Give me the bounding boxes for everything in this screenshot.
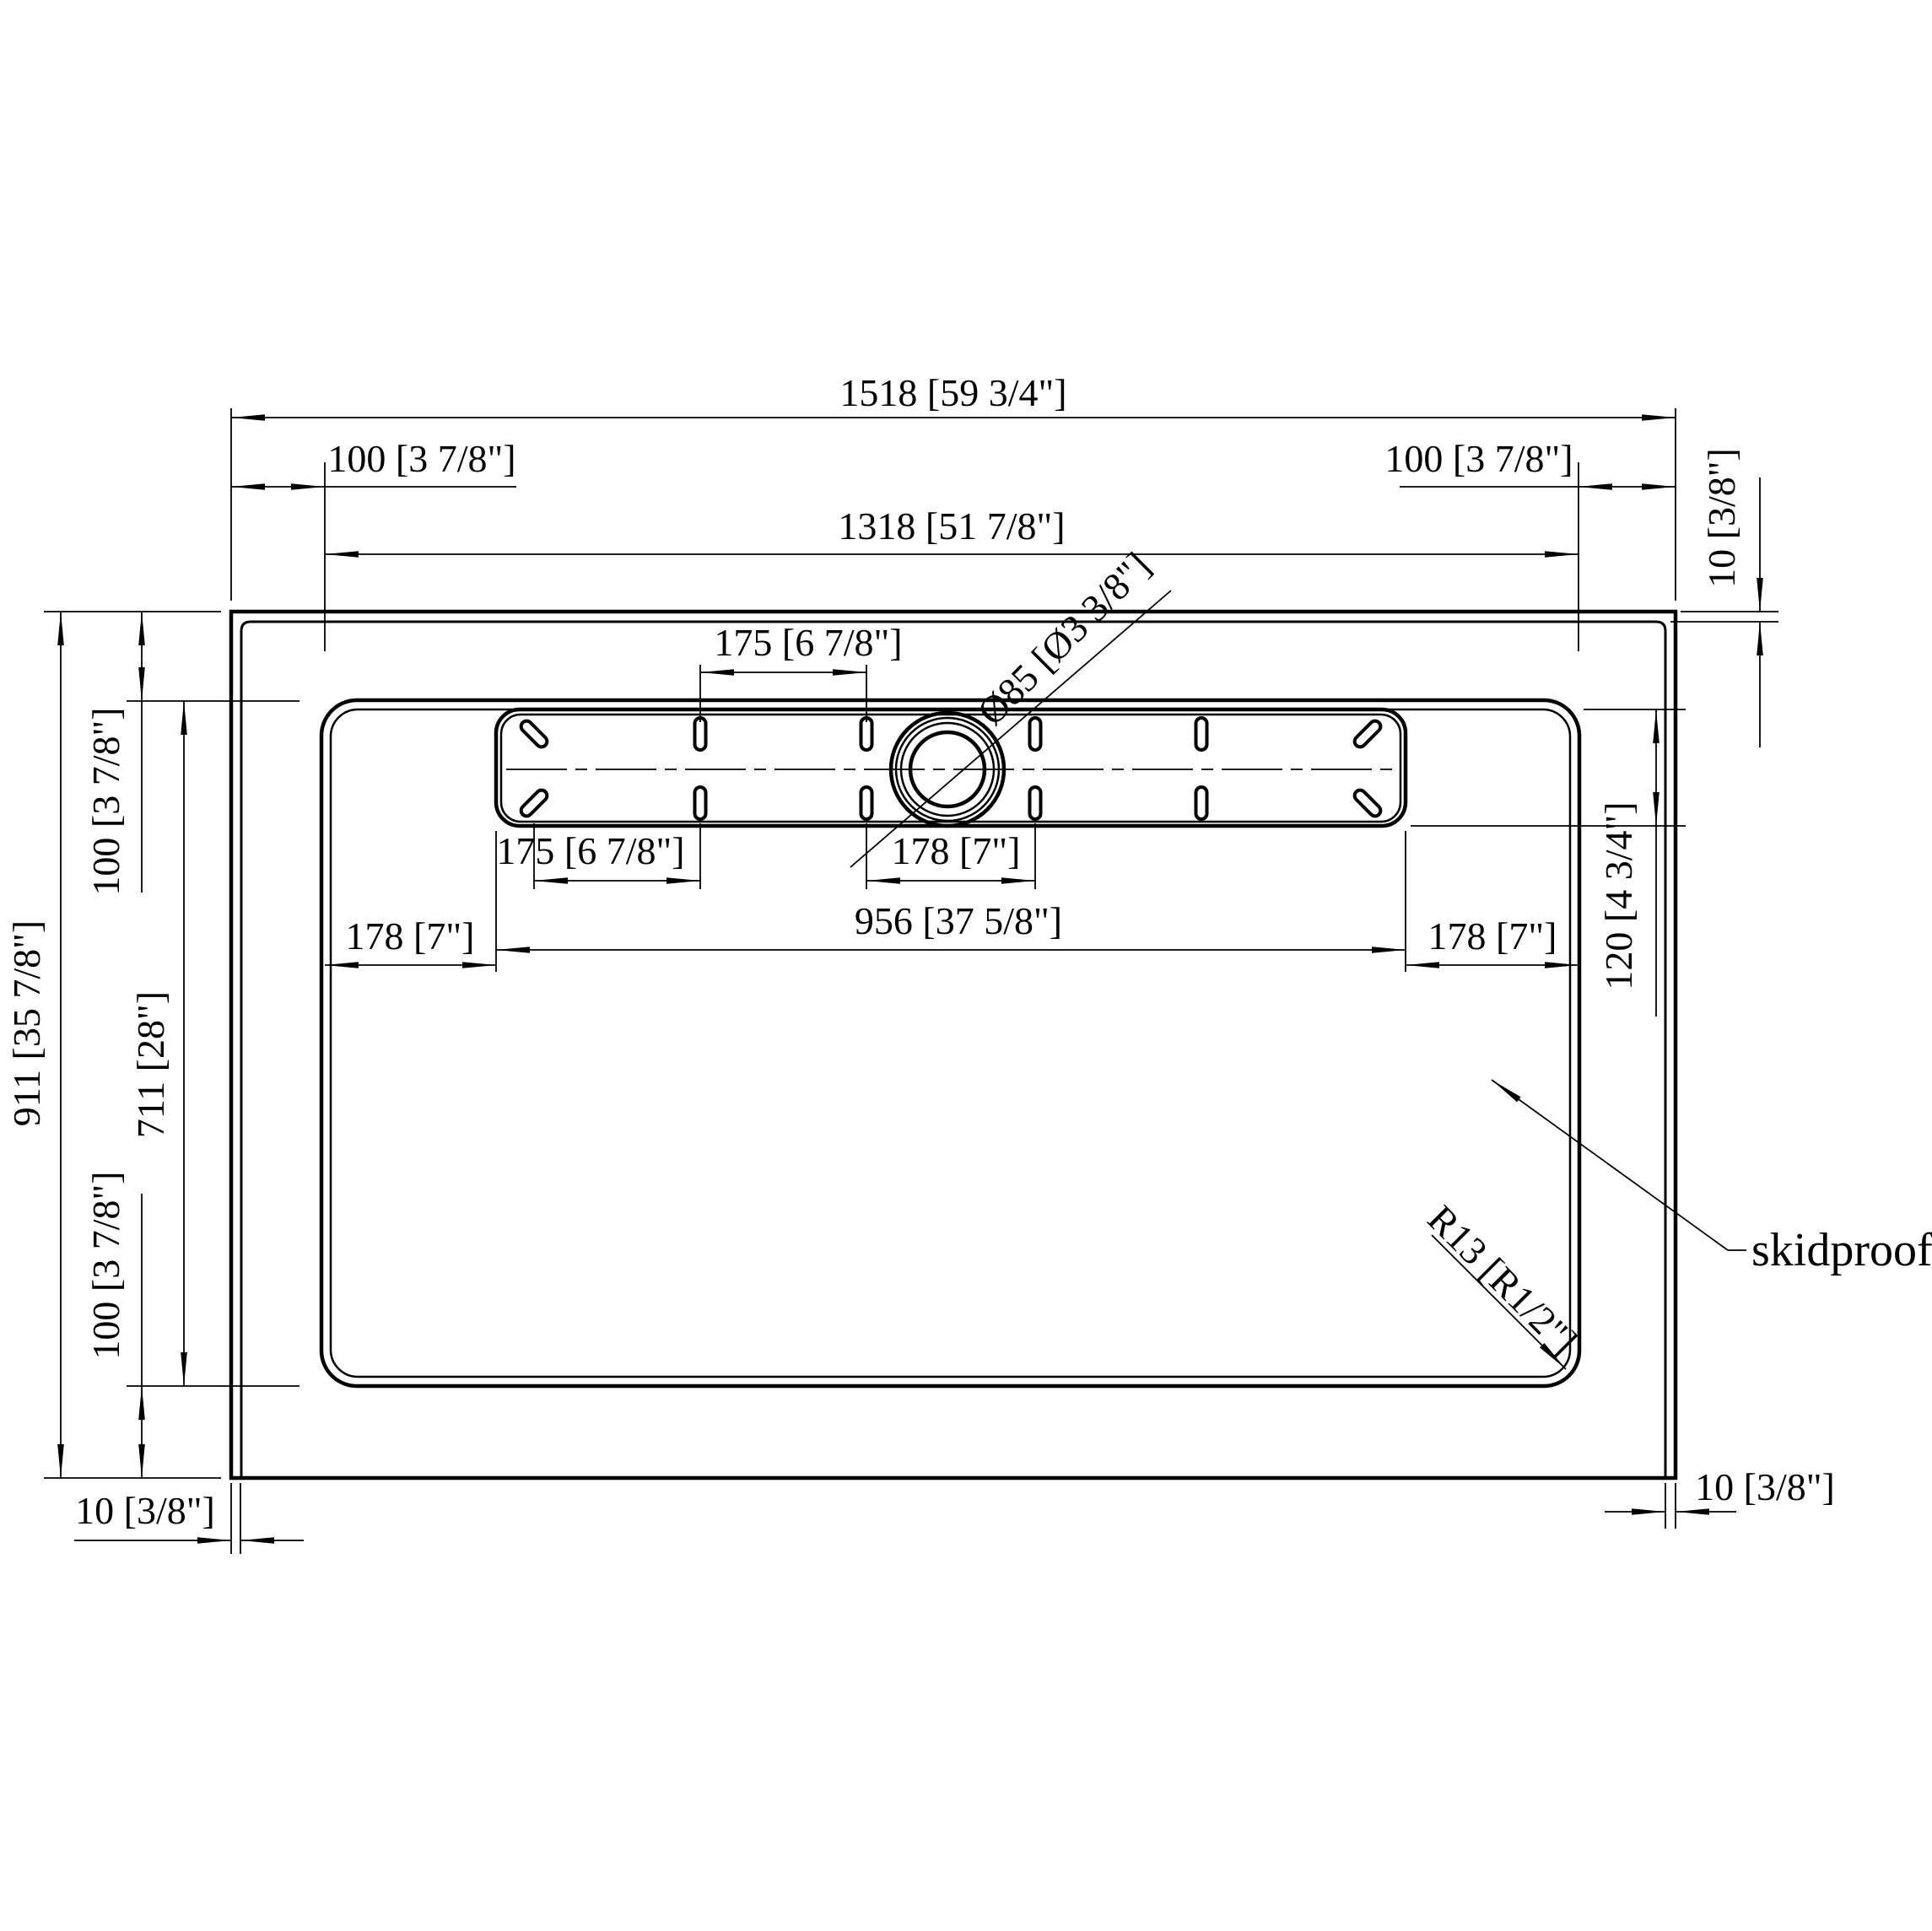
grate-slot	[1196, 718, 1207, 750]
dim-edge-step-top-right: 10 [3/8"]	[1670, 448, 1778, 747]
dim-strip-height: 120 [4 3/4"]	[1411, 709, 1686, 1017]
drain-assembly	[496, 709, 1406, 826]
dim-corner-radius: R13 [R1/2"]	[1420, 1197, 1586, 1369]
dim-text-basin-height: 711 [28"]	[129, 991, 172, 1138]
dim-text-drain-diameter: Ø85 [Ø3 3/8"]	[969, 544, 1159, 734]
dim-strip-offset-right: 178 [7"]	[1406, 914, 1579, 965]
dim-text-strip-width: 956 [37 5/8"]	[855, 899, 1062, 942]
grate-slot	[1030, 787, 1041, 819]
dim-slot-pitch-lower-center: 178 [7"]	[866, 823, 1035, 889]
dim-strip-offset-left: 178 [7"]	[325, 914, 496, 965]
dim-basin-width: 1318 [51 7/8"]	[325, 504, 1579, 554]
dim-text-slot-pitch-upper: 175 [6 7/8"]	[714, 621, 902, 664]
dim-edge-step-bottom-left: 10 [3/8"]	[74, 1483, 304, 1554]
dim-text-lip-bottom: 100 [3 7/8"]	[84, 1171, 127, 1359]
dim-text-lip-left: 100 [3 7/8"]	[327, 437, 515, 480]
dim-text-lip-right: 100 [3 7/8"]	[1384, 437, 1573, 480]
grate-slot	[695, 718, 706, 750]
grate-slot-diagonal	[1352, 719, 1383, 749]
dim-edge-step-bottom-right: 10 [3/8"]	[1605, 1465, 1835, 1529]
dim-text-edge-step-bottom-right: 10 [3/8"]	[1695, 1465, 1835, 1508]
dim-slot-pitch-lower-left: 175 [6 7/8"]	[496, 823, 700, 889]
drawing-sheet: 1518 [59 3/4"] 100 [3 7/8"] 100 [3 7/8"]…	[0, 0, 1932, 1931]
dim-lip-right: 100 [3 7/8"]	[1384, 437, 1676, 651]
dim-text-slot-pitch-lower-center: 178 [7"]	[892, 829, 1021, 872]
grate-slot-diagonal	[519, 719, 549, 749]
dim-text-corner-radius: R13 [R1/2"]	[1420, 1197, 1586, 1363]
dim-lip-bottom: 100 [3 7/8"]	[84, 1171, 300, 1478]
dim-text-strip-offset-right: 178 [7"]	[1428, 914, 1557, 957]
dim-text-basin-width: 1318 [51 7/8"]	[838, 504, 1065, 547]
tray-outer-edge	[231, 612, 1676, 1478]
basin-outer-edge	[321, 700, 1579, 1386]
dim-text-edge-step-bottom-left: 10 [3/8"]	[75, 1489, 215, 1532]
grate-slot	[695, 787, 706, 819]
grate-slot-diagonal	[1352, 788, 1383, 818]
dim-slot-pitch-upper: 175 [6 7/8"]	[700, 621, 903, 722]
dim-text-edge-step-top-right: 10 [3/8"]	[1700, 448, 1743, 588]
label-text-skidproof: skidproof	[1751, 1224, 1932, 1276]
label-skidproof: skidproof	[1492, 1080, 1932, 1276]
dim-drain-diameter: Ø85 [Ø3 3/8"]	[850, 544, 1171, 867]
dim-text-overall-height: 911 [35 7/8"]	[5, 920, 48, 1127]
dim-text-strip-height: 120 [4 3/4"]	[1597, 801, 1640, 990]
dim-text-overall-width: 1518 [59 3/4"]	[839, 371, 1066, 414]
dim-lip-top: 100 [3 7/8"]	[84, 612, 300, 896]
tray-rim-edge	[241, 622, 1665, 1478]
dim-basin-height: 711 [28"]	[129, 701, 184, 1386]
basin-inner-edge	[331, 709, 1570, 1377]
drain-strip-outer	[496, 709, 1406, 826]
dim-text-strip-offset-left: 178 [7"]	[346, 914, 475, 957]
grate-slot-diagonal	[519, 788, 549, 818]
grate-slot	[1030, 718, 1041, 750]
technical-drawing-canvas: 1518 [59 3/4"] 100 [3 7/8"] 100 [3 7/8"]…	[0, 0, 1932, 1931]
grate-slot	[1196, 787, 1207, 819]
dim-lip-left: 100 [3 7/8"]	[231, 437, 516, 651]
dim-overall-width: 1518 [59 3/4"]	[231, 371, 1676, 601]
dim-text-slot-pitch-lower-left: 175 [6 7/8"]	[496, 829, 684, 872]
grate-slot	[861, 718, 872, 750]
dim-text-lip-top: 100 [3 7/8"]	[84, 707, 127, 895]
grate-slot	[861, 787, 872, 819]
tray-top-view	[231, 612, 1676, 1478]
